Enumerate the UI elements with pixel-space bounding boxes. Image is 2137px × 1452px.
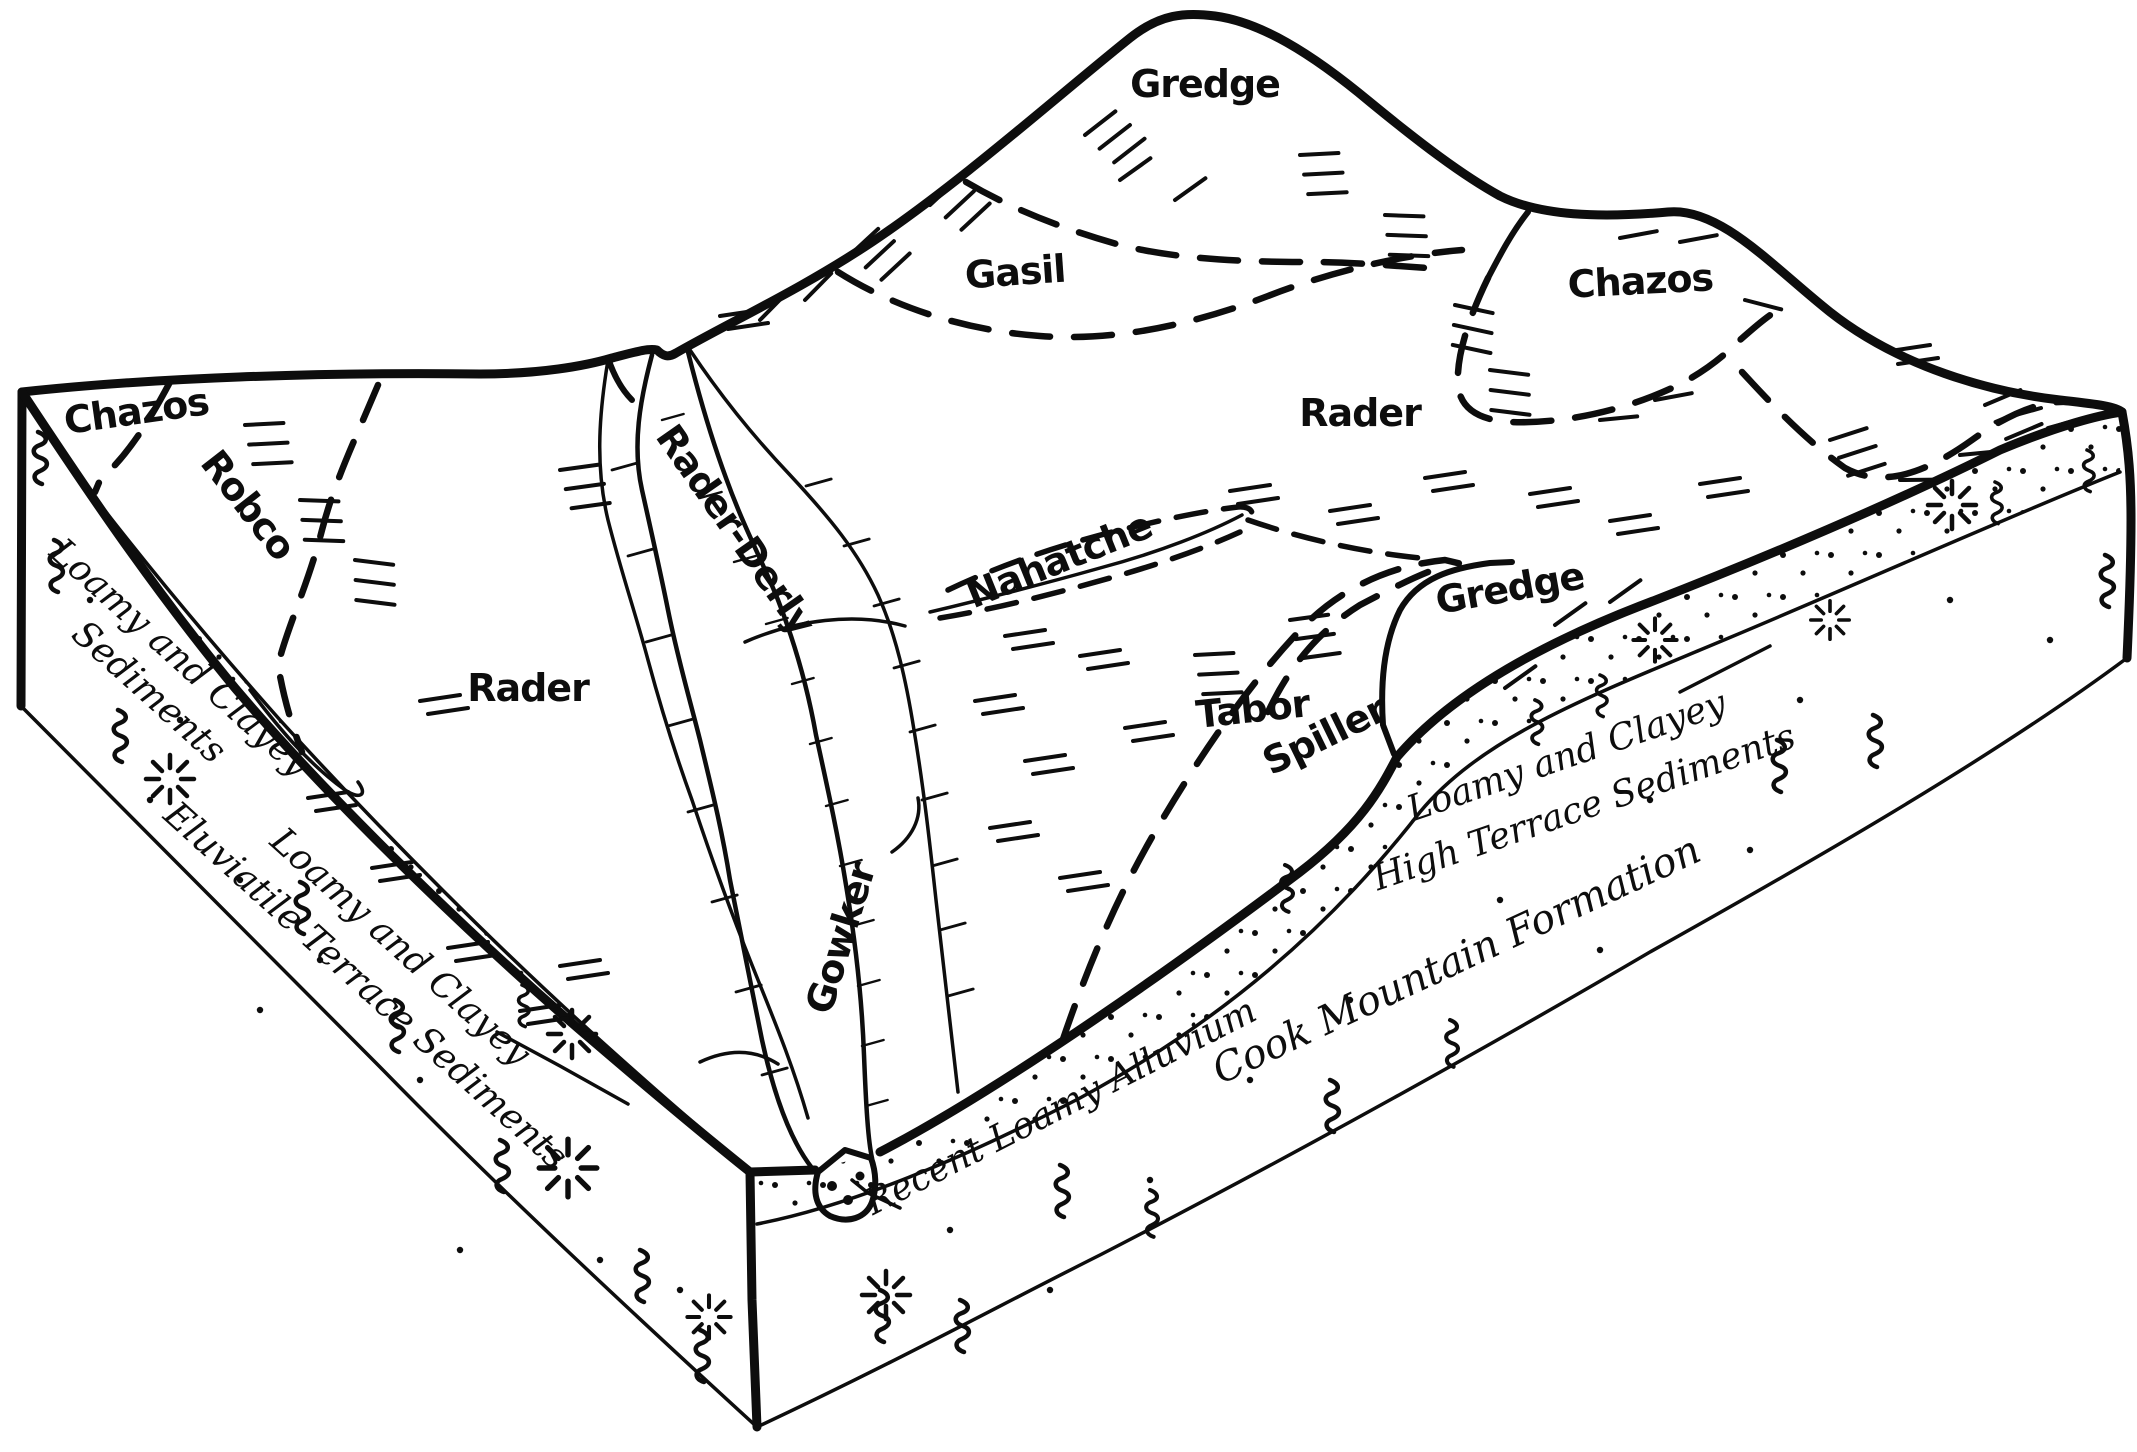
block-outline [21, 14, 2131, 1427]
slope-hachures [231, 107, 2084, 708]
svg-text:Eluviatile Terrace Sediments: Eluviatile Terrace Sediments [155, 793, 576, 1177]
block-diagram-canvas: Gredge Gasil Chazos Rader Chazos Robco R… [0, 0, 2137, 1452]
label-rader-west: Rader [467, 666, 590, 710]
label-eluviatile-terrace: Loamy and Clayey Eluviatile Terrace Sedi… [155, 755, 610, 1178]
label-gasil: Gasil [963, 247, 1066, 298]
label-gredge-hill: Gredge [1130, 62, 1280, 106]
label-loamy-clayey-sediments: Loamy and Clayey Sediments [10, 530, 318, 820]
stream-valley [600, 350, 958, 1168]
label-chazos-east: Chazos [1567, 255, 1715, 307]
soil-block-diagram: Gredge Gasil Chazos Rader Chazos Robco R… [0, 0, 2137, 1452]
label-rader-east: Rader [1299, 391, 1422, 435]
subsurface-labels: Loamy and Clayey Sediments Loamy and Cla… [10, 530, 1800, 1224]
label-rader-derly: Rader-Derly [647, 416, 824, 643]
label-gowker: Gowker [797, 856, 885, 1018]
